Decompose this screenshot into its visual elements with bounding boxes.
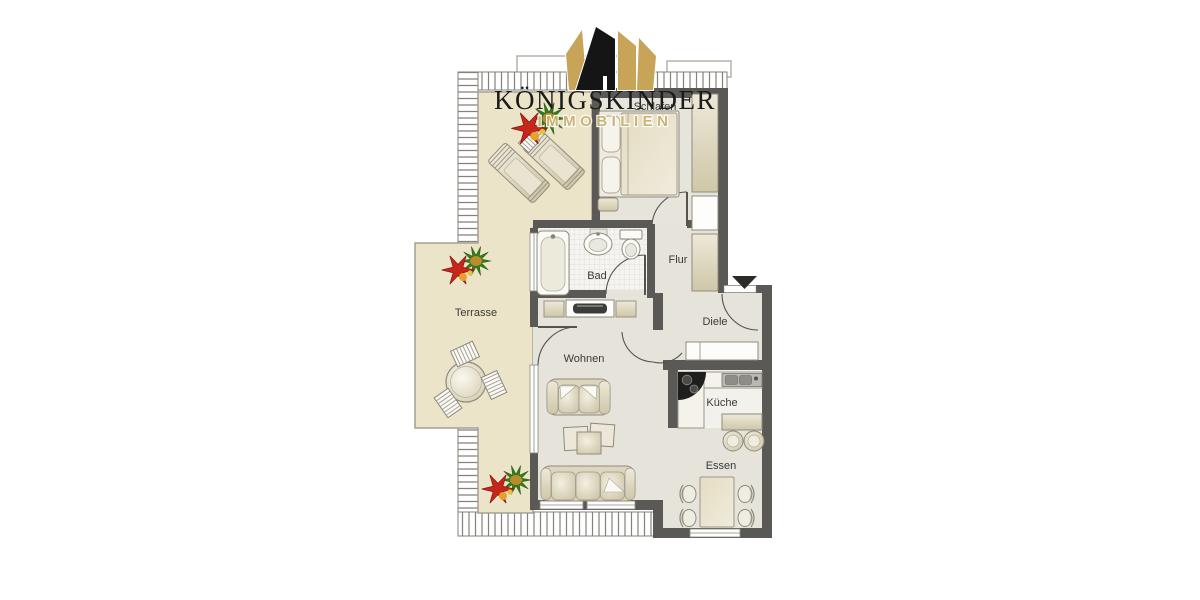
shelf-niche: [692, 196, 718, 230]
bar-table: [722, 414, 762, 430]
nightstand: [598, 198, 618, 211]
kitchen-sink: [722, 374, 762, 387]
bathtub: [537, 231, 569, 295]
label-terrasse: Terrasse: [455, 307, 497, 319]
floor-plan-page: Schlafen Bad Flur Diele Wohnen Küche Ess…: [0, 0, 1200, 600]
label-kueche: Küche: [706, 397, 737, 409]
floor-plan-canvas: Schlafen Bad Flur Diele Wohnen Küche Ess…: [0, 0, 1200, 600]
toilet: [620, 230, 642, 259]
tv-lowboard: [544, 300, 636, 317]
dining-table: [700, 477, 734, 527]
label-essen: Essen: [706, 460, 737, 472]
crown-icon: [566, 27, 656, 90]
tv: [573, 304, 607, 314]
label-flur: Flur: [669, 254, 688, 266]
logo-subtitle: IMMOBILIEN: [538, 113, 673, 130]
three-seat-sofa: [541, 466, 635, 501]
label-wohnen: Wohnen: [564, 353, 605, 365]
hall-cabinet: [692, 234, 718, 291]
diele-cupboard: [686, 342, 758, 360]
label-diele: Diele: [702, 316, 727, 328]
label-bad: Bad: [587, 270, 607, 282]
pillow: [602, 157, 620, 193]
logo-title: KÖNIGSKINDER: [494, 85, 716, 115]
two-seat-sofa: [547, 379, 610, 415]
